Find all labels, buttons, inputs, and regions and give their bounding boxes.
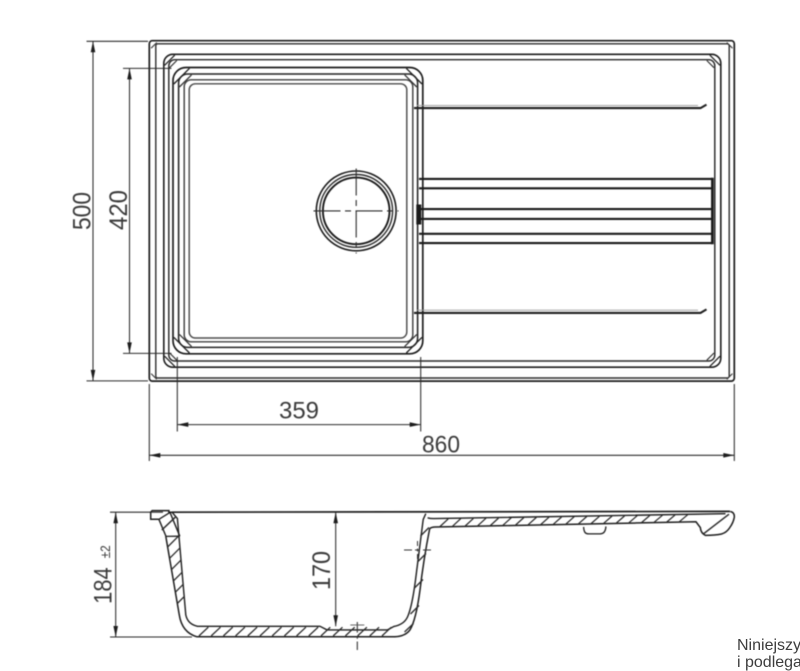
svg-text:170: 170 (308, 551, 336, 590)
svg-text:860: 860 (422, 431, 460, 458)
svg-text:500: 500 (69, 192, 97, 230)
svg-text:±2: ±2 (97, 545, 113, 558)
svg-text:184: 184 (89, 567, 117, 604)
svg-text:420: 420 (105, 190, 133, 230)
svg-text:359: 359 (279, 398, 319, 425)
